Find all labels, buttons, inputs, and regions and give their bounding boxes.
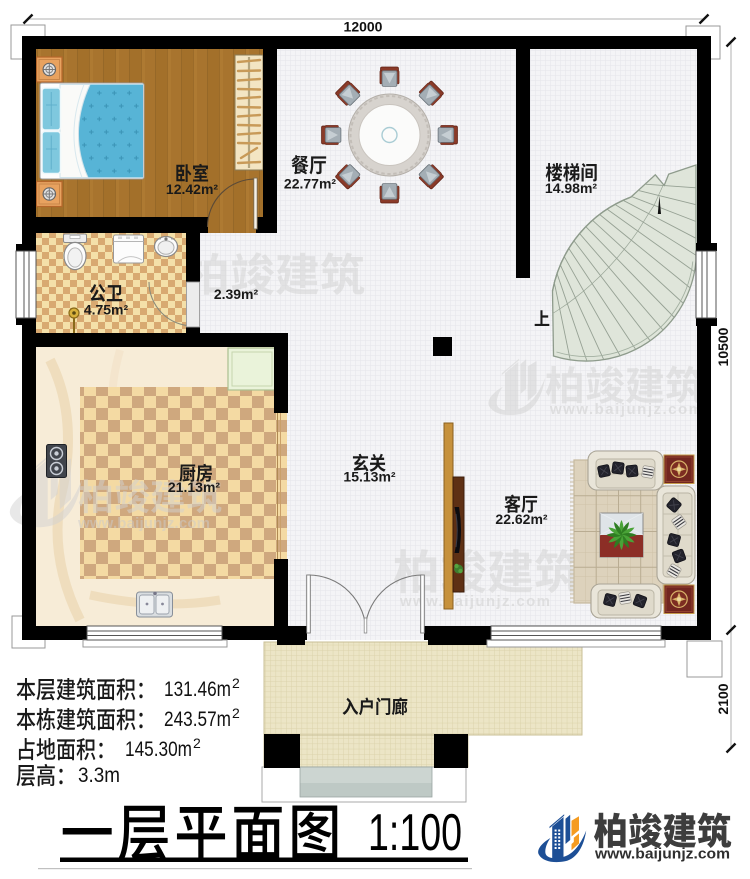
svg-text:2: 2 [232,675,240,691]
svg-text:21.13m²: 21.13m² [168,479,220,495]
svg-text:243.57m: 243.57m [164,708,231,731]
svg-text:12.42m²: 12.42m² [166,181,218,197]
svg-text:1:100: 1:100 [368,804,462,862]
svg-text:131.46m: 131.46m [164,678,231,701]
svg-text:145.30m: 145.30m [125,738,192,761]
svg-text:www.baijunjz.com: www.baijunjz.com [594,846,730,863]
svg-text:2: 2 [232,705,240,721]
svg-text:2.39m²: 2.39m² [214,286,259,302]
svg-text:2: 2 [193,735,201,751]
svg-text:www.baijunjz.com: www.baijunjz.com [77,515,210,532]
svg-text:22.77m²: 22.77m² [284,176,336,192]
svg-text:15.13m²: 15.13m² [343,469,395,485]
svg-text:4.75m²: 4.75m² [84,302,129,318]
svg-text:www.baijunjz.com: www.baijunjz.com [549,401,702,418]
svg-text:3.3m: 3.3m [78,764,120,787]
svg-text:12000: 12000 [344,19,383,35]
svg-text:2100: 2100 [715,683,731,714]
svg-text:14.98m²: 14.98m² [545,180,597,196]
svg-text:22.62m²: 22.62m² [495,511,547,527]
svg-text:10500: 10500 [715,327,731,366]
